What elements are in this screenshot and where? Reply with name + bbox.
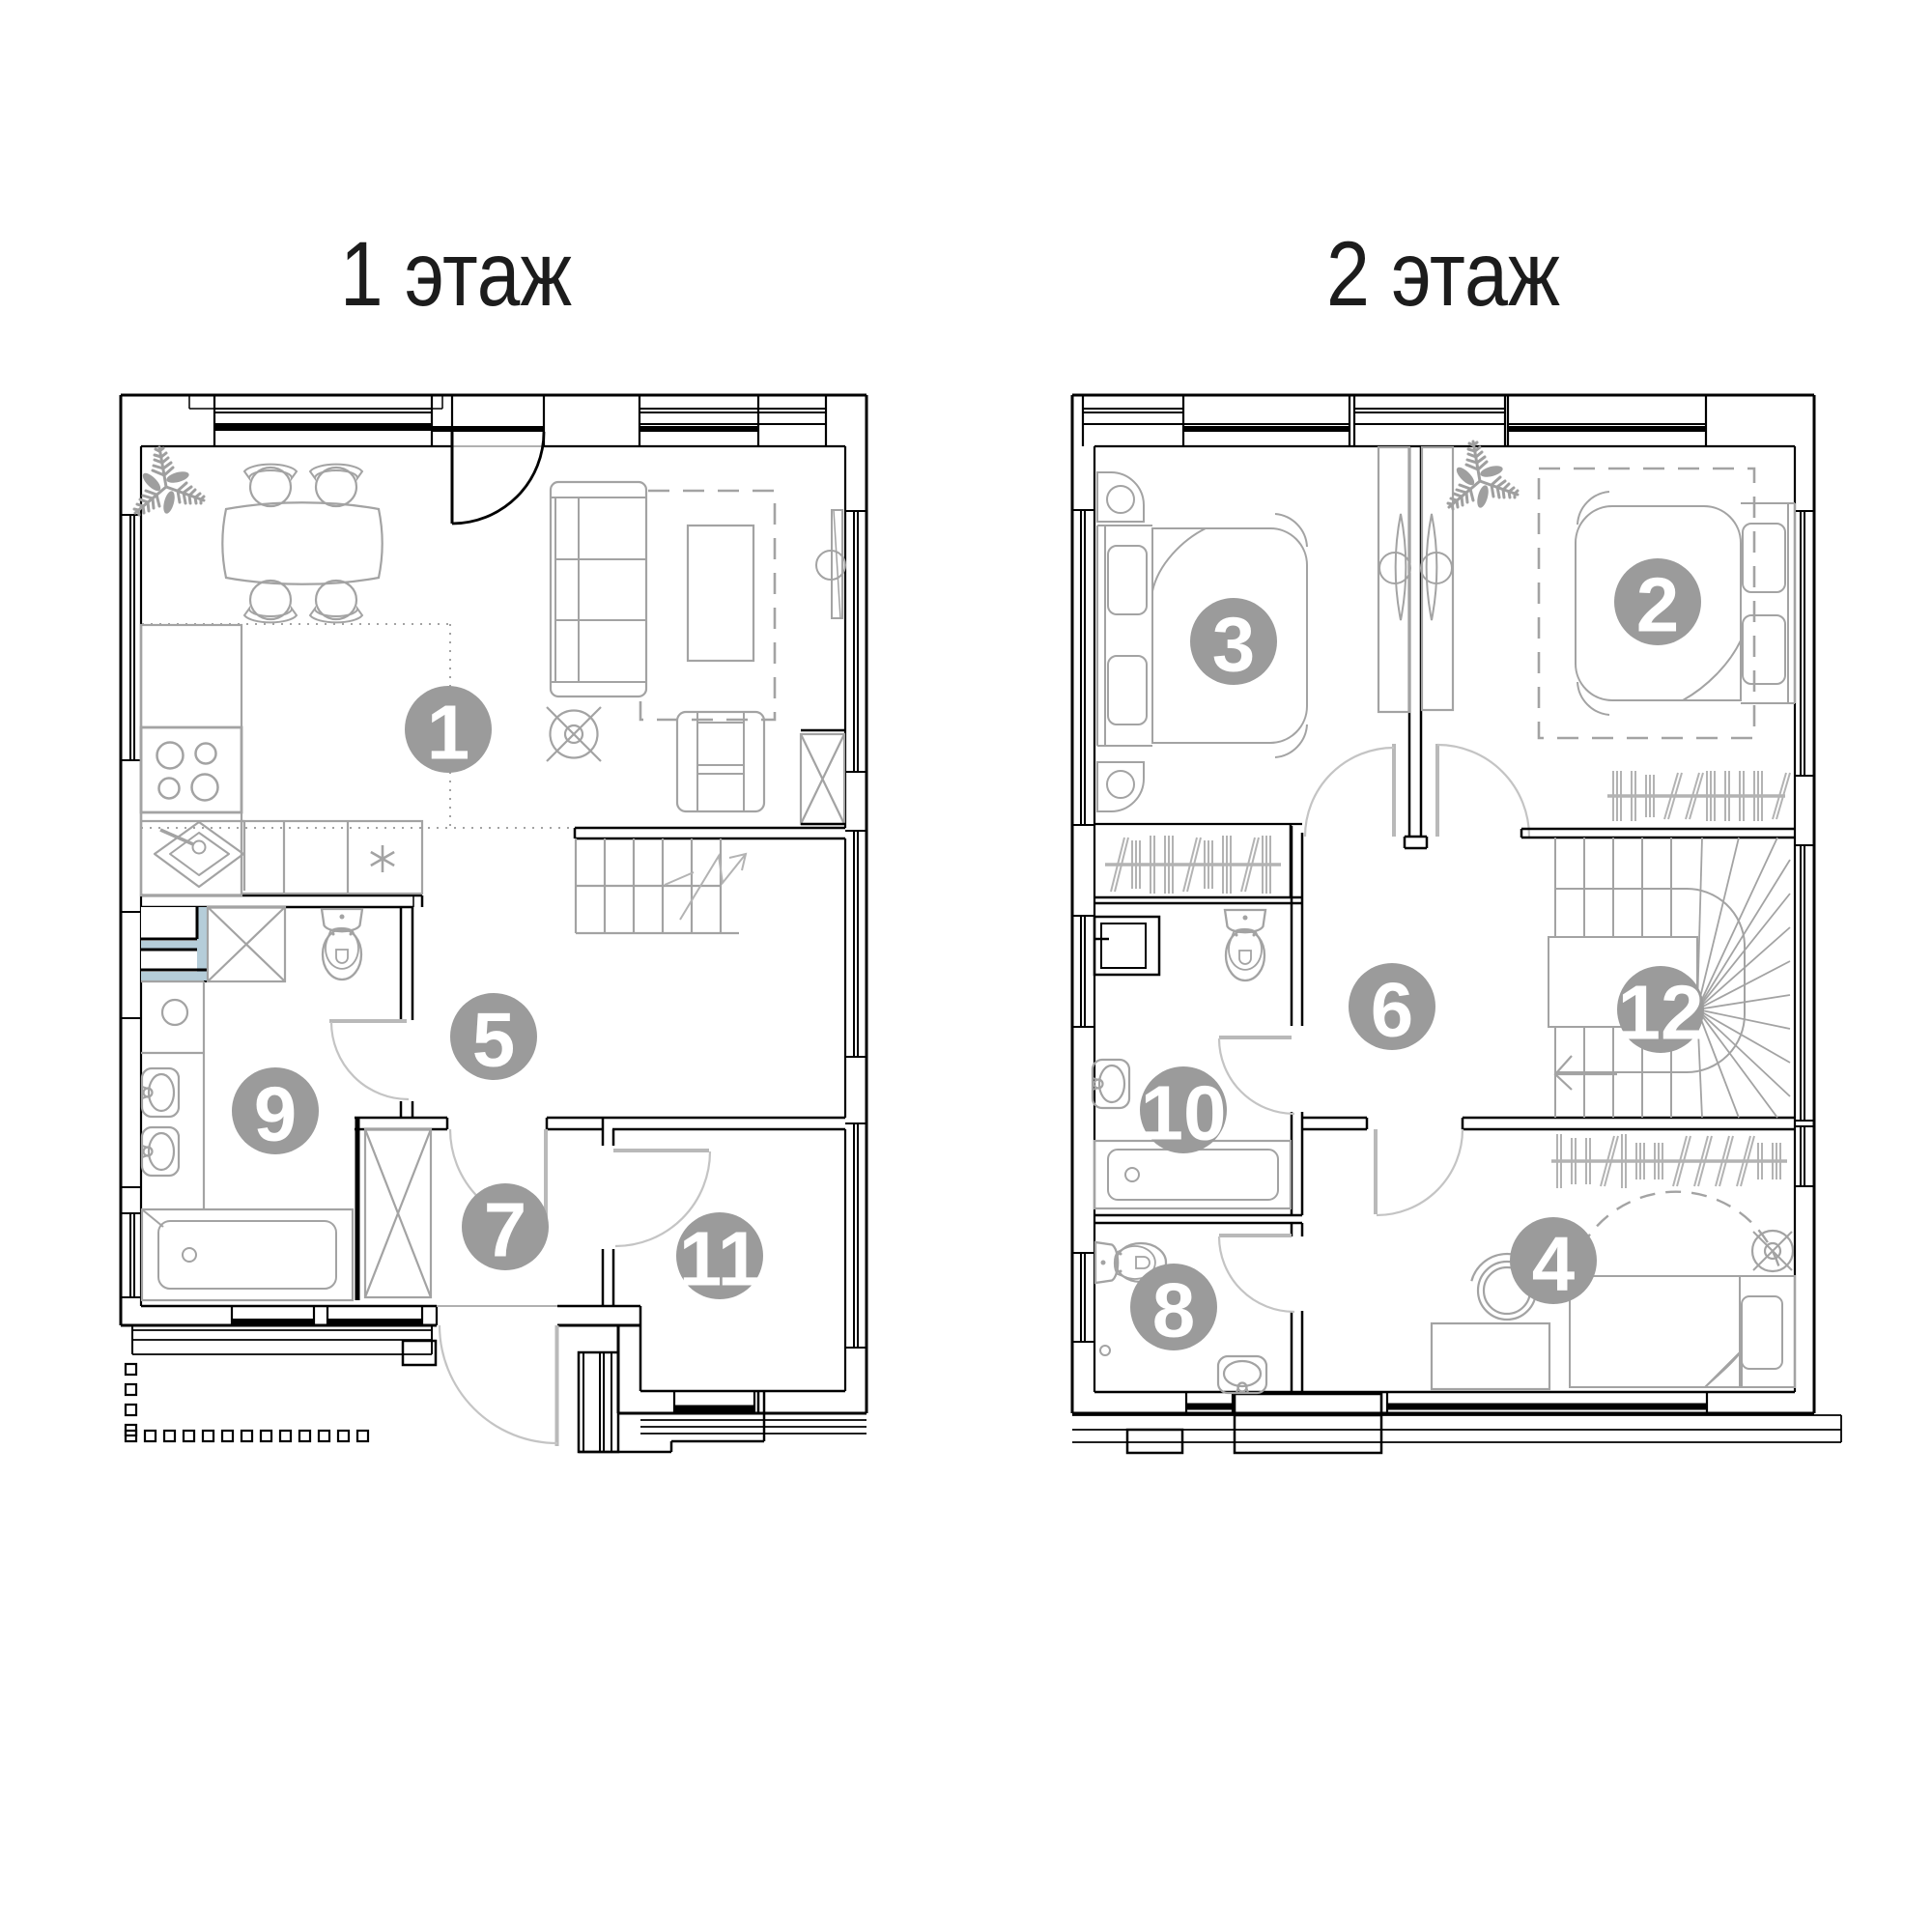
svg-text:8: 8 — [1152, 1267, 1196, 1353]
svg-text:5: 5 — [472, 997, 516, 1083]
svg-text:4: 4 — [1532, 1221, 1576, 1307]
svg-text:9: 9 — [254, 1071, 298, 1157]
svg-text:1: 1 — [427, 690, 470, 776]
svg-text:10: 10 — [1141, 1070, 1227, 1156]
svg-text:12: 12 — [1618, 970, 1704, 1056]
svg-text:2 этаж: 2 этаж — [1326, 223, 1560, 326]
svg-text:3: 3 — [1212, 602, 1256, 688]
svg-text:7: 7 — [484, 1187, 527, 1273]
svg-text:11: 11 — [679, 1216, 761, 1302]
svg-text:6: 6 — [1371, 967, 1414, 1053]
svg-text:1 этаж: 1 этаж — [340, 223, 572, 326]
svg-text:2: 2 — [1636, 562, 1680, 648]
